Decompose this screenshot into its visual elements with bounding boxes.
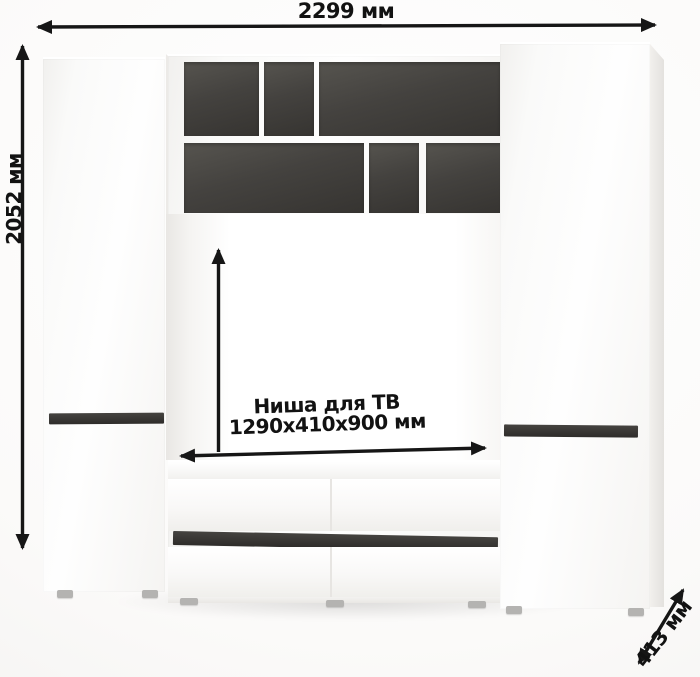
open-shelf-compartment xyxy=(426,143,502,213)
open-shelf-compartment xyxy=(184,62,259,136)
cabinet-foot xyxy=(506,606,522,614)
drawer-front xyxy=(168,547,330,597)
cabinet-foot xyxy=(326,600,344,607)
width-dimension-label: 2299 мм xyxy=(246,1,446,21)
drawer-front xyxy=(168,479,330,531)
open-shelf-compartment xyxy=(184,143,364,213)
tv-stand xyxy=(168,460,502,603)
tv-niche-label: Ниша для ТВ 1290x410x900 мм xyxy=(216,390,437,438)
cabinet-foot xyxy=(180,598,198,605)
right-cabinet-side-panel xyxy=(650,44,664,607)
height-dimension-label: 2052 мм xyxy=(4,139,26,259)
furniture-dimension-diagram: 2299 мм 2052 мм Ниша для ТВ 1290x410x900… xyxy=(0,0,700,677)
right-cabinet xyxy=(500,42,650,609)
top-shelf-unit xyxy=(166,54,504,216)
left-cabinet-handle-strip xyxy=(49,413,164,425)
tv-stand-top-surface xyxy=(168,462,502,480)
drawer-seam xyxy=(330,479,332,531)
cabinet-foot xyxy=(142,590,158,598)
open-shelf-compartment xyxy=(319,62,500,136)
drawer-seam xyxy=(330,547,332,597)
open-shelf-compartment xyxy=(264,62,314,136)
drawer-front xyxy=(332,479,502,531)
cabinet-foot xyxy=(468,601,486,608)
cabinet-foot xyxy=(57,590,73,598)
left-cabinet xyxy=(43,57,165,592)
width-dimension-arrow xyxy=(38,25,655,27)
drawer-front xyxy=(332,547,502,597)
right-cabinet-handle-strip xyxy=(504,424,638,437)
open-shelf-compartment xyxy=(369,143,419,213)
cabinet-foot xyxy=(628,608,644,616)
